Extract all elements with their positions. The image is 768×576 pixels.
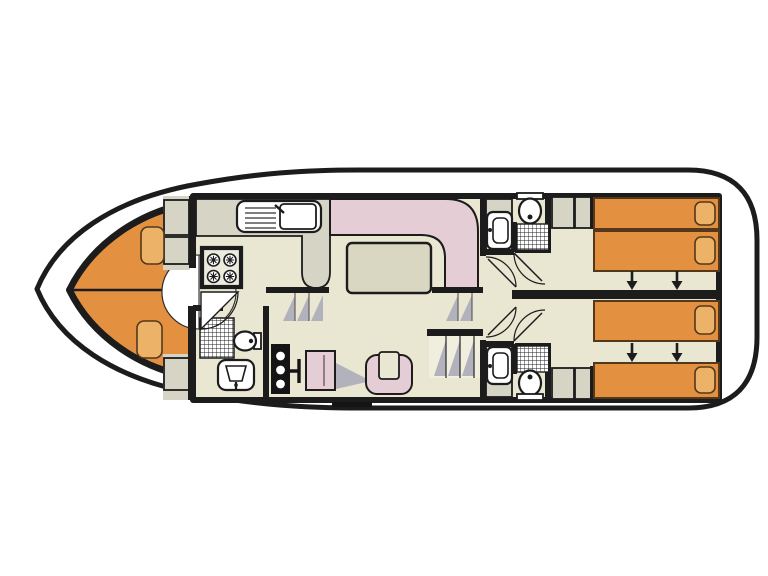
burner-icon	[208, 271, 220, 283]
sink-basin	[280, 204, 316, 229]
bed-pillow	[695, 306, 715, 334]
instrument-dial	[276, 366, 285, 375]
wall	[188, 306, 196, 400]
dining-table	[347, 243, 431, 293]
wardrobe	[552, 368, 574, 399]
cabin-divider-wall	[512, 290, 722, 299]
wardrobe	[164, 358, 189, 390]
instrument-dial	[276, 380, 285, 389]
companionway-stairs	[427, 329, 483, 378]
stove	[202, 248, 241, 287]
burner-icon	[224, 271, 236, 283]
wall	[189, 196, 196, 268]
pillow	[141, 227, 164, 264]
wall	[427, 329, 483, 336]
wall	[266, 287, 329, 293]
shower-grid	[517, 224, 549, 250]
instrument-dial	[276, 352, 285, 361]
boat-plan-svg	[0, 0, 768, 576]
wardrobe	[164, 200, 189, 235]
wall	[432, 287, 483, 293]
helm-chair	[306, 351, 335, 390]
burner-icon	[224, 254, 236, 266]
washbasin-icon	[218, 360, 254, 390]
washbasin-icon	[487, 347, 512, 384]
pillow	[137, 321, 162, 358]
floor-plan-image	[0, 0, 768, 576]
washbasin-icon	[487, 212, 512, 249]
toilet-icon	[517, 371, 543, 401]
bed-pillow	[695, 367, 715, 393]
boarding-step	[332, 402, 372, 407]
toilet-icon	[517, 193, 543, 224]
wardrobe	[164, 237, 189, 264]
u-shaped-chair	[366, 352, 412, 394]
bed-pillow	[695, 237, 715, 264]
wardrobe	[552, 197, 574, 228]
wall	[263, 306, 269, 398]
burner-icon	[208, 254, 220, 266]
shower-grid	[517, 346, 549, 372]
toilet-icon	[234, 332, 261, 351]
bed-pillow	[695, 202, 715, 225]
